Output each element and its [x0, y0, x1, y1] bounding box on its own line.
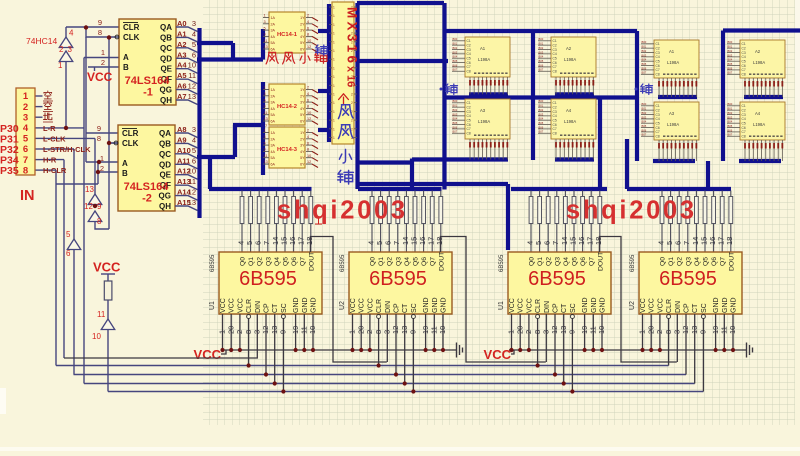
- svg-text:Q2: Q2: [387, 257, 394, 266]
- svg-text:C8: C8: [553, 70, 557, 74]
- svg-text:Q5: Q5: [413, 257, 420, 266]
- svg-text:3Y: 3Y: [300, 101, 305, 105]
- svg-text:DIN: DIN: [675, 301, 682, 313]
- svg-text:B02: B02: [539, 108, 544, 112]
- svg-text:B05: B05: [453, 59, 458, 63]
- svg-text:8: 8: [307, 105, 309, 109]
- svg-text:8: 8: [98, 28, 102, 37]
- svg-text:5A: 5A: [271, 41, 276, 45]
- svg-text:18: 18: [435, 237, 444, 245]
- svg-text:9: 9: [264, 105, 266, 109]
- svg-text:DOUT: DOUT: [597, 252, 604, 271]
- svg-text:B04: B04: [728, 58, 733, 62]
- svg-text:2Y: 2Y: [300, 94, 305, 98]
- svg-text:A: A: [122, 159, 128, 168]
- svg-text:1: 1: [333, 110, 335, 114]
- svg-text:QC: QC: [159, 150, 171, 159]
- svg-text:B07: B07: [539, 130, 544, 134]
- svg-text:B05: B05: [728, 124, 733, 128]
- svg-text:VCC: VCC: [359, 298, 366, 313]
- svg-text:1: 1: [333, 49, 335, 53]
- svg-text:QE: QE: [159, 171, 171, 180]
- svg-text:B02: B02: [728, 49, 733, 53]
- svg-text:B05: B05: [642, 62, 647, 66]
- svg-text:Q7: Q7: [720, 257, 727, 266]
- svg-text:VCC: VCC: [229, 298, 236, 313]
- svg-text:8: 8: [97, 217, 102, 226]
- svg-text:B04: B04: [642, 58, 647, 62]
- svg-text:4: 4: [192, 135, 196, 144]
- svg-text:L198A: L198A: [478, 119, 490, 124]
- svg-text:GND: GND: [423, 297, 430, 313]
- svg-text:B01: B01: [539, 42, 544, 46]
- svg-text:B03: B03: [539, 50, 544, 54]
- svg-text:Q6: Q6: [711, 257, 718, 266]
- svg-text:VCC: VCC: [367, 298, 374, 313]
- svg-text:L-CLK: L-CLK: [43, 135, 66, 144]
- svg-text:B00: B00: [728, 40, 733, 44]
- svg-text:74HC14: 74HC14: [26, 36, 57, 46]
- svg-text:A7: A7: [177, 92, 187, 101]
- svg-text:B07: B07: [728, 133, 733, 137]
- svg-text:IN: IN: [20, 188, 35, 204]
- svg-text:5: 5: [66, 230, 71, 239]
- svg-text:11: 11: [188, 71, 196, 80]
- svg-text:B01: B01: [539, 104, 544, 108]
- svg-text:B06: B06: [539, 125, 544, 129]
- svg-text:B04: B04: [728, 120, 733, 124]
- svg-text:2: 2: [351, 119, 353, 123]
- svg-text:B07: B07: [453, 68, 458, 72]
- svg-text:SC: SC: [411, 303, 418, 313]
- svg-text:CLR: CLR: [246, 299, 253, 313]
- svg-text:1: 1: [264, 86, 266, 90]
- svg-text:5: 5: [23, 134, 29, 145]
- svg-text:VCC: VCC: [194, 347, 222, 362]
- svg-text:4A: 4A: [271, 107, 276, 111]
- svg-text:6: 6: [307, 26, 309, 30]
- svg-text:6Y: 6Y: [300, 163, 305, 167]
- svg-text:2: 2: [100, 164, 104, 173]
- svg-text:2: 2: [307, 129, 309, 133]
- svg-text:GND: GND: [311, 297, 318, 313]
- svg-text:Q7: Q7: [430, 257, 437, 266]
- svg-text:Q6: Q6: [421, 257, 428, 266]
- svg-text:B01: B01: [453, 104, 458, 108]
- svg-text:7: 7: [23, 155, 28, 166]
- svg-text:CLR: CLR: [376, 299, 383, 313]
- svg-text:VCC: VCC: [220, 298, 227, 313]
- svg-text:CP: CP: [264, 303, 271, 313]
- svg-text:Q1: Q1: [537, 257, 544, 266]
- svg-text:Q3: Q3: [395, 257, 402, 266]
- svg-text:4: 4: [192, 29, 196, 38]
- svg-text:P35: P35: [0, 165, 19, 177]
- svg-text:3: 3: [264, 135, 266, 139]
- svg-text:Q2: Q2: [257, 257, 264, 266]
- svg-text:B05: B05: [539, 59, 544, 63]
- svg-text:B00: B00: [539, 99, 544, 103]
- svg-text:2: 2: [307, 86, 309, 90]
- svg-text:6: 6: [307, 98, 309, 102]
- svg-text:2: 2: [351, 93, 353, 97]
- svg-text:6B595: 6B595: [528, 268, 586, 290]
- svg-text:GND: GND: [441, 297, 448, 313]
- svg-text:2: 2: [101, 58, 105, 67]
- svg-text:L-R: L-R: [43, 124, 56, 133]
- svg-text:H-CLR: H-CLR: [43, 166, 67, 175]
- svg-text:MX316: MX316: [345, 7, 360, 63]
- svg-text:5: 5: [192, 146, 196, 155]
- svg-text:1: 1: [264, 129, 266, 133]
- svg-text:11: 11: [264, 39, 268, 43]
- svg-text:Q0: Q0: [660, 257, 667, 266]
- svg-text:L198A: L198A: [564, 119, 576, 124]
- svg-text:B03: B03: [728, 115, 733, 119]
- svg-text:HC14-2: HC14-2: [277, 104, 297, 110]
- svg-text:B06: B06: [728, 66, 733, 70]
- svg-text:2A: 2A: [271, 94, 276, 98]
- svg-text:B05: B05: [728, 62, 733, 66]
- svg-text:U1: U1: [209, 301, 216, 310]
- svg-text:A1: A1: [177, 29, 187, 38]
- svg-text:Q1: Q1: [668, 257, 675, 266]
- svg-text:8: 8: [97, 134, 101, 143]
- svg-text:1: 1: [333, 58, 335, 62]
- svg-text:VCC: VCC: [518, 298, 525, 313]
- svg-text:74LS164: 74LS164: [124, 181, 170, 193]
- svg-text:GND: GND: [293, 297, 300, 313]
- svg-text:QB: QB: [160, 33, 172, 42]
- svg-text:10: 10: [307, 111, 311, 115]
- svg-text:QD: QD: [159, 160, 171, 169]
- svg-text:13: 13: [85, 185, 94, 194]
- svg-text:A4: A4: [755, 111, 761, 116]
- svg-text:5Y: 5Y: [300, 41, 305, 45]
- svg-text:GND: GND: [722, 297, 729, 313]
- svg-text:4: 4: [307, 20, 309, 24]
- svg-text:74LS164: 74LS164: [125, 75, 171, 87]
- svg-text:B07: B07: [453, 130, 458, 134]
- svg-text:B03: B03: [642, 53, 647, 57]
- svg-text:L198A: L198A: [564, 57, 576, 62]
- svg-text:B03: B03: [453, 50, 458, 54]
- svg-text:6: 6: [192, 156, 196, 165]
- svg-text:1: 1: [100, 154, 104, 163]
- svg-text:CP: CP: [684, 303, 691, 313]
- svg-text:1Y: 1Y: [300, 88, 305, 92]
- svg-text:3: 3: [68, 45, 73, 54]
- svg-text:B01: B01: [642, 107, 647, 111]
- svg-text:11: 11: [264, 111, 268, 115]
- svg-text:4A: 4A: [271, 150, 276, 154]
- svg-text:B04: B04: [539, 55, 544, 59]
- svg-text:6B595: 6B595: [210, 254, 216, 272]
- svg-text:Q6: Q6: [291, 257, 298, 266]
- svg-text:H-R: H-R: [43, 156, 57, 165]
- svg-text:6B595: 6B595: [659, 268, 717, 290]
- svg-text:1A: 1A: [271, 131, 276, 135]
- svg-text:6Y: 6Y: [300, 48, 305, 52]
- svg-text:QA: QA: [160, 23, 172, 32]
- svg-text:B02: B02: [728, 111, 733, 115]
- svg-text:B06: B06: [453, 125, 458, 129]
- svg-text:shqi2003: shqi2003: [277, 197, 405, 225]
- svg-text:VCC: VCC: [350, 298, 357, 313]
- svg-text:L198A: L198A: [753, 60, 765, 65]
- svg-text:B05: B05: [642, 124, 647, 128]
- svg-text:B07: B07: [642, 71, 647, 75]
- svg-text:B00: B00: [728, 102, 733, 106]
- svg-text:B04: B04: [539, 117, 544, 121]
- svg-text:B02: B02: [539, 46, 544, 50]
- svg-text:12: 12: [188, 188, 196, 197]
- svg-text:QD: QD: [160, 54, 172, 63]
- svg-text:L198A: L198A: [478, 57, 490, 62]
- svg-text:-2: -2: [142, 193, 152, 205]
- svg-text:L198A: L198A: [667, 122, 679, 127]
- svg-text:13: 13: [264, 160, 268, 164]
- svg-text:5: 5: [192, 40, 196, 49]
- svg-text:4: 4: [23, 123, 29, 134]
- svg-text:8: 8: [307, 33, 309, 37]
- svg-text:10: 10: [188, 61, 196, 70]
- svg-text:A9: A9: [177, 135, 187, 144]
- svg-text:6B595: 6B595: [239, 268, 297, 290]
- svg-text:6: 6: [192, 50, 196, 59]
- svg-text:QE: QE: [160, 65, 172, 74]
- svg-text:6B595: 6B595: [630, 254, 636, 272]
- svg-text:Q3: Q3: [685, 257, 692, 266]
- svg-text:6: 6: [66, 249, 71, 258]
- svg-text:2Y: 2Y: [300, 22, 305, 26]
- svg-text:5Y: 5Y: [300, 156, 305, 160]
- svg-text:SC: SC: [570, 303, 577, 313]
- svg-text:C8: C8: [656, 73, 660, 77]
- svg-text:B05: B05: [453, 121, 458, 125]
- svg-text:4: 4: [307, 92, 309, 96]
- svg-text:18: 18: [305, 237, 314, 245]
- svg-text:A4: A4: [177, 61, 187, 70]
- svg-text:5A: 5A: [271, 156, 276, 160]
- svg-text:B: B: [122, 169, 128, 178]
- svg-text:4: 4: [69, 29, 74, 38]
- svg-text:CP: CP: [394, 303, 401, 313]
- svg-text:1: 1: [101, 48, 105, 57]
- svg-text:1: 1: [264, 14, 266, 18]
- svg-text:3A: 3A: [271, 101, 276, 105]
- svg-text:5Y: 5Y: [300, 113, 305, 117]
- svg-text:Q3: Q3: [554, 257, 561, 266]
- svg-text:10: 10: [307, 154, 311, 158]
- svg-text:Q5: Q5: [703, 257, 710, 266]
- svg-text:VCC: VCC: [526, 298, 533, 313]
- svg-text:QC: QC: [160, 44, 172, 53]
- svg-text:10: 10: [92, 332, 101, 341]
- svg-text:6B595: 6B595: [369, 268, 427, 290]
- svg-text:B06: B06: [453, 63, 458, 67]
- svg-text:QH: QH: [159, 202, 171, 211]
- svg-text:DOUT: DOUT: [308, 252, 315, 271]
- svg-text:B07: B07: [728, 71, 733, 75]
- svg-text:B06: B06: [642, 66, 647, 70]
- svg-text:C8: C8: [553, 132, 557, 136]
- svg-text:Q4: Q4: [274, 257, 281, 266]
- svg-text:A1: A1: [480, 46, 486, 51]
- svg-text:11: 11: [97, 310, 106, 319]
- svg-text:3A: 3A: [271, 144, 276, 148]
- svg-text:B07: B07: [642, 133, 647, 137]
- svg-text:L-STR/H-CLK: L-STR/H-CLK: [43, 145, 91, 154]
- svg-text:12: 12: [307, 117, 311, 121]
- svg-text:1: 1: [333, 66, 335, 70]
- svg-text:1: 1: [333, 23, 335, 27]
- svg-text:CLK: CLK: [123, 33, 140, 42]
- svg-text:2A: 2A: [271, 137, 276, 141]
- svg-text:A: A: [123, 53, 129, 62]
- svg-text:CT: CT: [402, 303, 409, 313]
- svg-text:6B595: 6B595: [340, 254, 346, 272]
- svg-text:3: 3: [192, 125, 196, 134]
- svg-text:A5: A5: [177, 71, 187, 80]
- svg-text:CT: CT: [272, 303, 279, 313]
- svg-text:B03: B03: [642, 115, 647, 119]
- svg-text:B05: B05: [539, 121, 544, 125]
- svg-text:B01: B01: [453, 42, 458, 46]
- svg-text:SC: SC: [281, 303, 288, 313]
- svg-text:1: 1: [23, 91, 29, 102]
- svg-text:U2: U2: [339, 301, 346, 310]
- svg-text:6: 6: [307, 141, 309, 145]
- svg-text:DOUT: DOUT: [438, 252, 445, 271]
- svg-text:Q4: Q4: [694, 257, 701, 266]
- svg-text:4Y: 4Y: [300, 150, 305, 154]
- svg-text:4: 4: [307, 135, 309, 139]
- svg-text:1: 1: [333, 101, 335, 105]
- svg-text:11: 11: [264, 154, 268, 158]
- svg-text:B03: B03: [728, 53, 733, 57]
- svg-text:1Y: 1Y: [300, 131, 305, 135]
- svg-text:11: 11: [188, 177, 196, 186]
- svg-text:A1: A1: [669, 49, 675, 54]
- svg-text:1: 1: [333, 75, 335, 79]
- svg-text:1: 1: [333, 32, 335, 36]
- svg-text:Q2: Q2: [546, 257, 553, 266]
- svg-text:CLR: CLR: [122, 129, 139, 138]
- svg-text:B00: B00: [453, 99, 458, 103]
- svg-text:B01: B01: [728, 45, 733, 49]
- svg-text:10: 10: [307, 39, 311, 43]
- svg-text:C8: C8: [742, 135, 746, 139]
- svg-text:VCC: VCC: [87, 70, 113, 84]
- svg-text:C8: C8: [656, 135, 660, 139]
- svg-text:2: 2: [23, 102, 28, 113]
- svg-text:GND: GND: [432, 297, 439, 313]
- svg-text:1: 1: [333, 136, 335, 140]
- svg-text:GND: GND: [713, 297, 720, 313]
- svg-text:13: 13: [264, 45, 268, 49]
- svg-text:CT: CT: [692, 303, 699, 313]
- svg-text:10: 10: [188, 167, 196, 176]
- svg-text:QB: QB: [159, 139, 171, 148]
- svg-text:Q0: Q0: [240, 257, 247, 266]
- svg-text:3Y: 3Y: [300, 29, 305, 33]
- svg-text:VCC: VCC: [237, 298, 244, 313]
- svg-text:3: 3: [264, 20, 266, 24]
- svg-text:GND: GND: [600, 297, 607, 313]
- svg-text:SC: SC: [701, 303, 708, 313]
- svg-text:C8: C8: [742, 73, 746, 77]
- svg-text:Q7: Q7: [300, 257, 307, 266]
- svg-text:HC14-1: HC14-1: [277, 32, 298, 38]
- svg-text:U1: U1: [498, 301, 505, 310]
- svg-text:QH: QH: [160, 96, 172, 105]
- svg-text:GND: GND: [582, 297, 589, 313]
- svg-text:1A: 1A: [271, 88, 276, 92]
- svg-text:Q0: Q0: [529, 257, 536, 266]
- svg-text:1: 1: [58, 61, 63, 70]
- svg-text:2: 2: [59, 45, 64, 54]
- svg-text:VCC: VCC: [93, 260, 121, 275]
- svg-text:8: 8: [307, 148, 309, 152]
- svg-text:L198A: L198A: [667, 60, 679, 65]
- svg-text:A3: A3: [177, 50, 187, 59]
- svg-text:shqi2003: shqi2003: [566, 197, 694, 225]
- svg-text:Q5: Q5: [283, 257, 290, 266]
- svg-text:1: 1: [333, 119, 335, 123]
- svg-text:1: 1: [333, 6, 335, 10]
- svg-text:5: 5: [264, 26, 266, 30]
- svg-text:16: 16: [345, 75, 357, 87]
- svg-text:C8: C8: [467, 132, 471, 136]
- svg-text:5: 5: [264, 98, 266, 102]
- svg-text:1A: 1A: [271, 16, 276, 20]
- svg-text:QA: QA: [159, 129, 171, 138]
- svg-text:2: 2: [351, 101, 353, 105]
- svg-text:Q7: Q7: [589, 257, 596, 266]
- svg-text:13: 13: [264, 117, 268, 121]
- svg-text:CT: CT: [561, 303, 568, 313]
- svg-text:B00: B00: [642, 40, 647, 44]
- svg-text:6A: 6A: [271, 120, 276, 124]
- svg-text:B03: B03: [539, 112, 544, 116]
- svg-text:1: 1: [333, 14, 335, 18]
- svg-text:3: 3: [264, 92, 266, 96]
- svg-text:CLR: CLR: [666, 299, 673, 313]
- svg-text:B: B: [123, 63, 129, 72]
- svg-text:CP: CP: [553, 303, 560, 313]
- svg-text:2A: 2A: [271, 22, 276, 26]
- svg-text:2Y: 2Y: [300, 137, 305, 141]
- svg-text:Q0: Q0: [370, 257, 377, 266]
- svg-text:VCC: VCC: [649, 298, 656, 313]
- svg-text:Q6: Q6: [580, 257, 587, 266]
- svg-text:CLR: CLR: [123, 23, 140, 32]
- svg-text:DOUT: DOUT: [728, 252, 735, 271]
- svg-text:1Y: 1Y: [300, 16, 305, 20]
- svg-text:B04: B04: [453, 117, 458, 121]
- svg-text:HC14-3: HC14-3: [277, 147, 298, 153]
- svg-text:B06: B06: [728, 128, 733, 132]
- svg-text:1: 1: [333, 40, 335, 44]
- svg-text:B06: B06: [642, 128, 647, 132]
- svg-text:Q4: Q4: [563, 257, 570, 266]
- svg-text:B06: B06: [539, 63, 544, 67]
- svg-text:B04: B04: [642, 120, 647, 124]
- svg-text:A2: A2: [755, 49, 761, 54]
- svg-text:x: x: [345, 66, 357, 73]
- svg-text:B03: B03: [453, 112, 458, 116]
